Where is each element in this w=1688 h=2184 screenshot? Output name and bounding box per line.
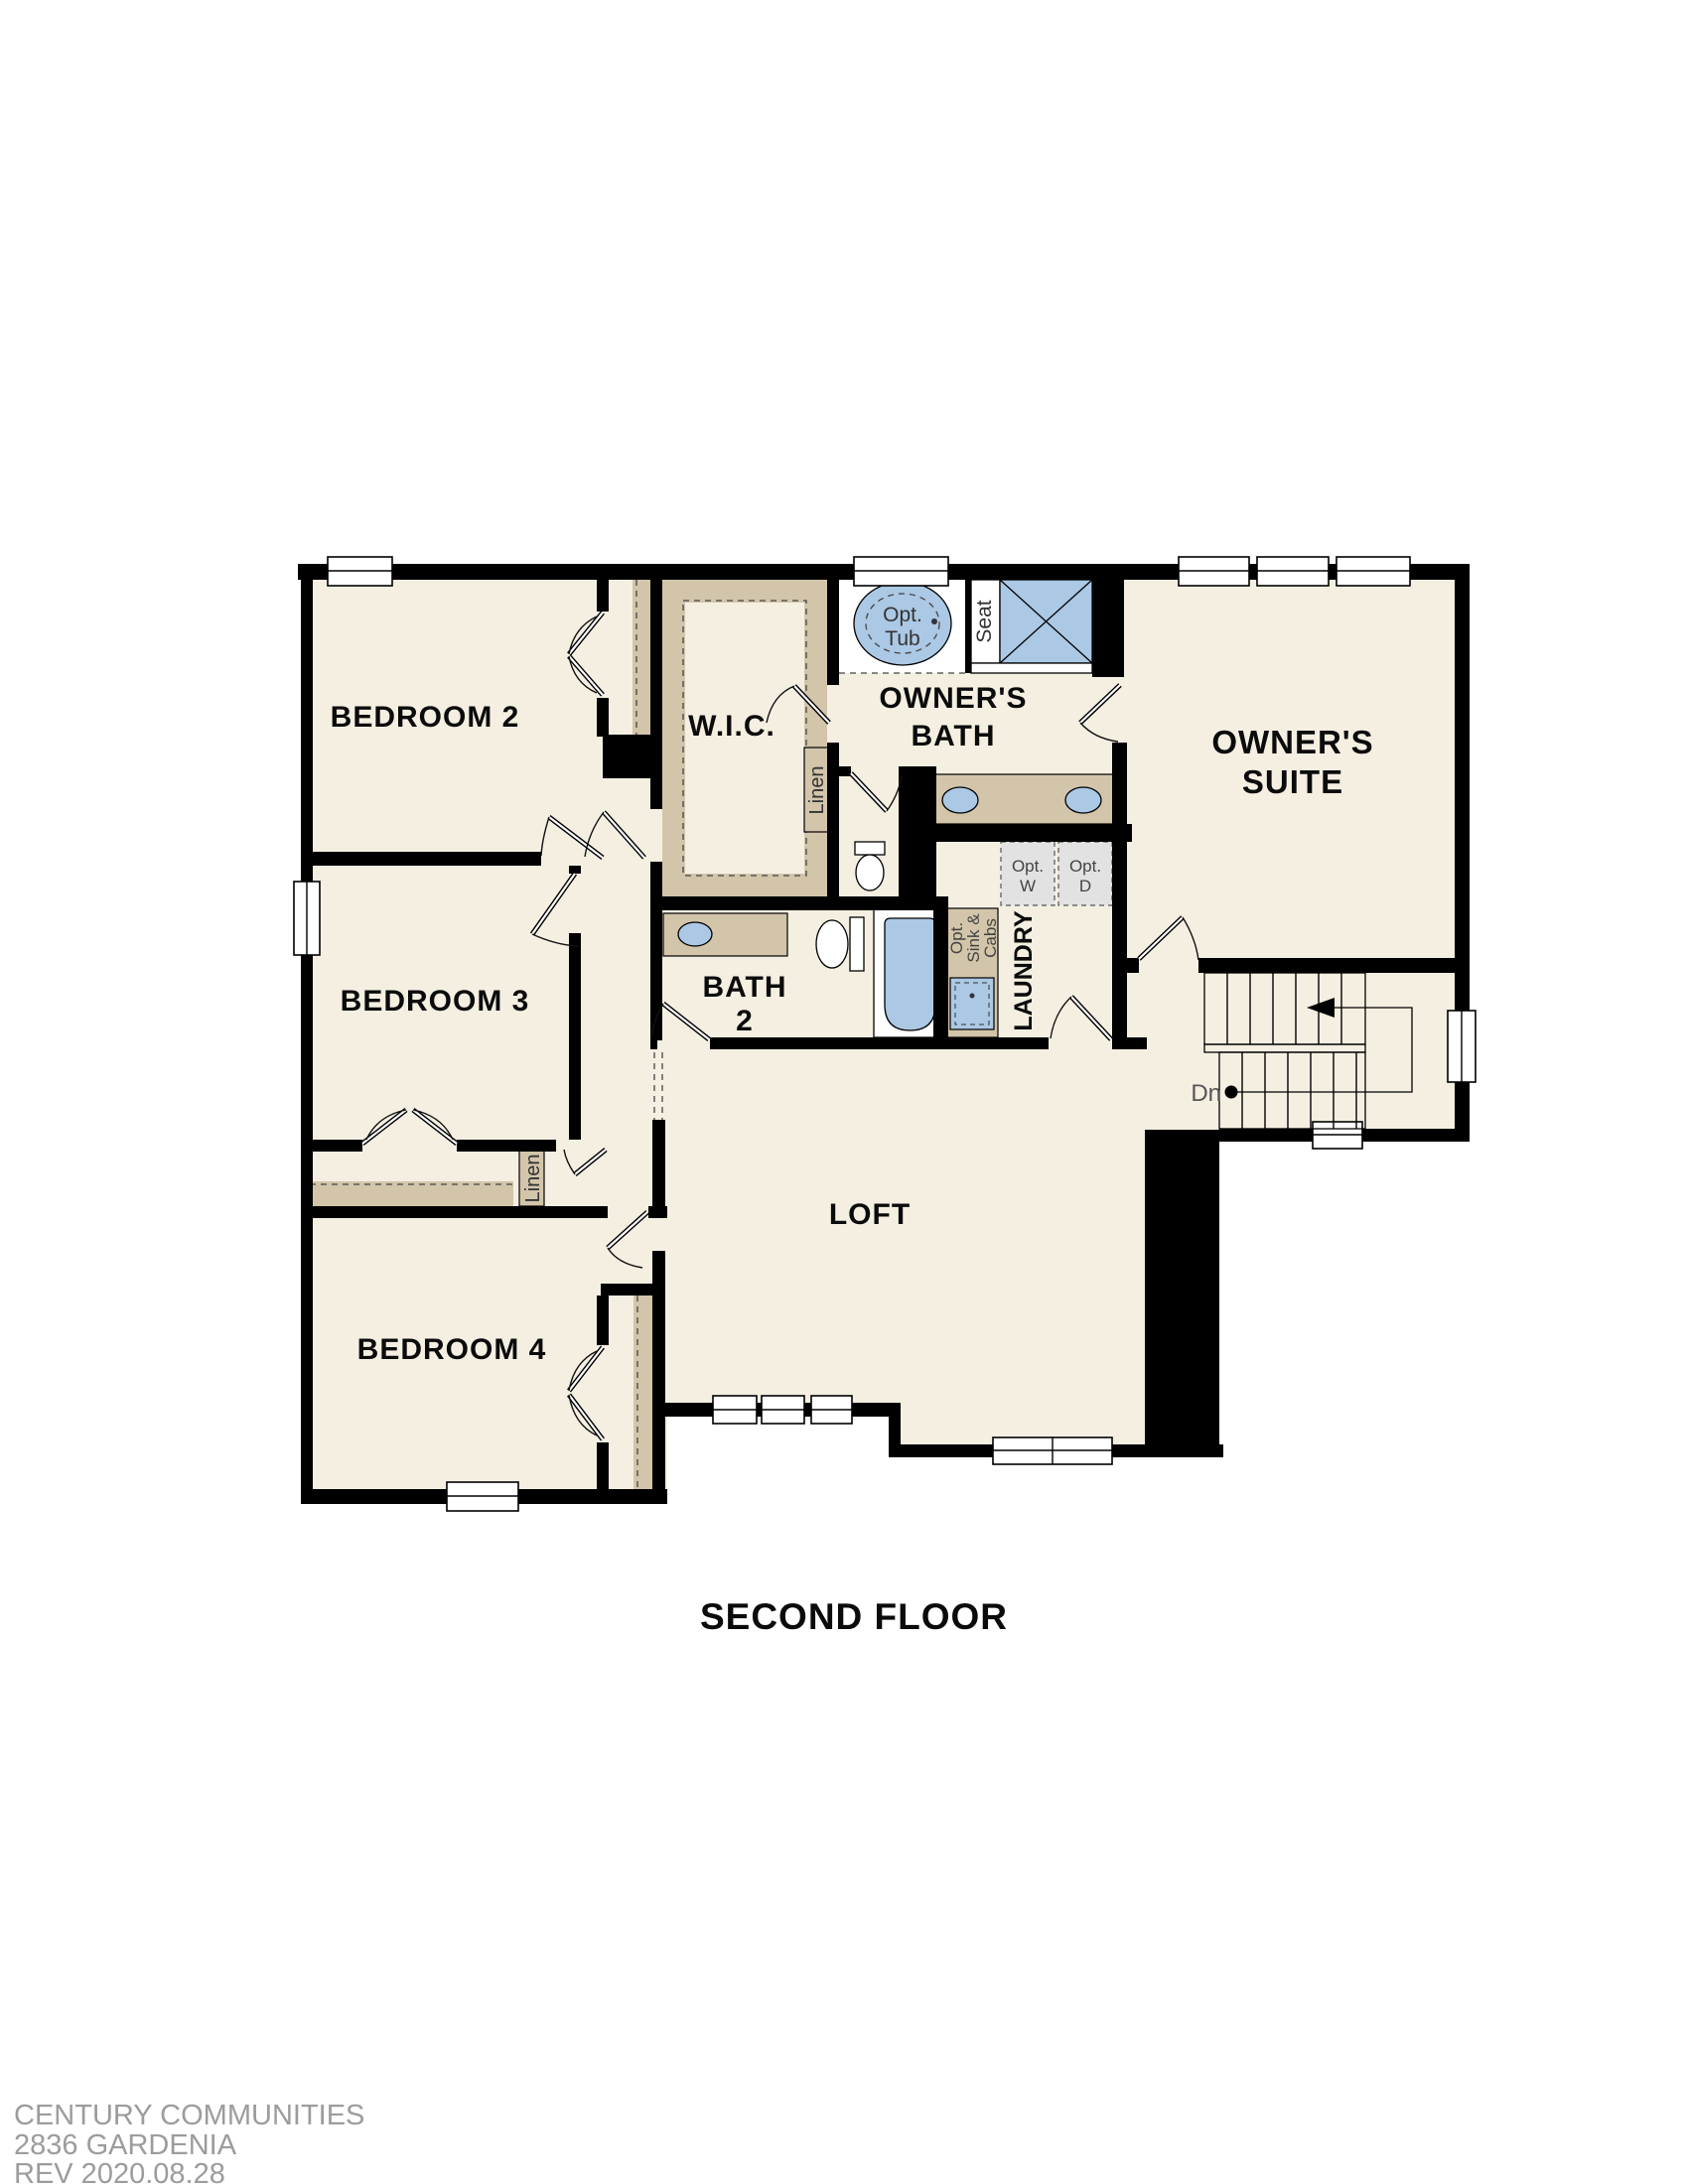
window [1313,1122,1362,1149]
room-label-bath2-1: BATH [702,971,786,1004]
window [1179,557,1249,586]
label-opt-washer-2: W [1020,877,1036,895]
window [447,1482,518,1511]
owners-toilet-icon [855,842,885,890]
window [328,557,392,586]
room-label-laundry: LAUNDRY [1010,910,1038,1031]
footer-brand: CENTURY COMMUNITIES [14,2100,364,2131]
label-linen-hall: Linen [522,1155,544,1203]
window [854,557,948,586]
bath2-tub-icon [885,918,935,1030]
window [762,1396,804,1424]
room-label-owners-bath-1: OWNER'S [879,682,1027,715]
label-opt-dryer-1: Opt. [1069,857,1101,876]
window [1336,557,1410,586]
room-label-owners-bath-2: BATH [911,720,995,752]
bath2-toilet-icon [816,917,864,971]
owners-sink-right-icon [1065,787,1101,813]
room-label-bedroom2: BEDROOM 2 [331,701,520,734]
laundry-sink-icon [950,978,994,1029]
bedroom4-closet-shelf [633,1296,655,1497]
room-label-bath2-2: 2 [736,1005,754,1037]
room-label-loft: LOFT [829,1198,911,1231]
window [713,1396,757,1424]
owners-sink-left-icon [942,787,978,813]
label-opt-tub-2: Tub [885,627,919,650]
room-label-owners-suite-2: SUITE [1242,763,1343,800]
window [1257,557,1329,586]
window [294,882,320,955]
label-opt-washer-1: Opt. [1012,857,1044,876]
bedroom3-closet-shelf [310,1181,513,1206]
room-label-wic: W.I.C. [688,710,775,743]
room-label-bedroom4: BEDROOM 4 [357,1333,547,1366]
footer-plan-name: 2836 GARDENIA [14,2129,237,2161]
room-label-bedroom3: BEDROOM 3 [341,985,530,1018]
label-linen-wic: Linen [806,766,828,815]
footer-revision: REV 2020.08.28 [14,2158,225,2184]
room-label-owners-suite-1: OWNER'S [1211,724,1373,760]
window [993,1437,1112,1464]
window [811,1396,852,1424]
bath2-sink-icon [678,922,712,946]
label-opt-dryer-2: D [1079,877,1091,895]
plan-title: SECOND FLOOR [700,1596,1008,1637]
floor-plan: BEDROOM 2 BEDROOM 3 BEDROOM 4 W.I.C. OWN… [0,0,1688,2184]
window [1448,1011,1476,1082]
label-stairs-down: Dn [1191,1080,1221,1107]
label-opt-sink-3: Cabs [981,918,1000,958]
label-opt-tub-1: Opt. [883,604,922,626]
floor-plan-page: BEDROOM 2 BEDROOM 3 BEDROOM 4 W.I.C. OWN… [0,0,1688,2184]
label-seat: Seat [973,600,996,642]
footer: CENTURY COMMUNITIES 2836 GARDENIA REV 20… [14,2100,364,2184]
